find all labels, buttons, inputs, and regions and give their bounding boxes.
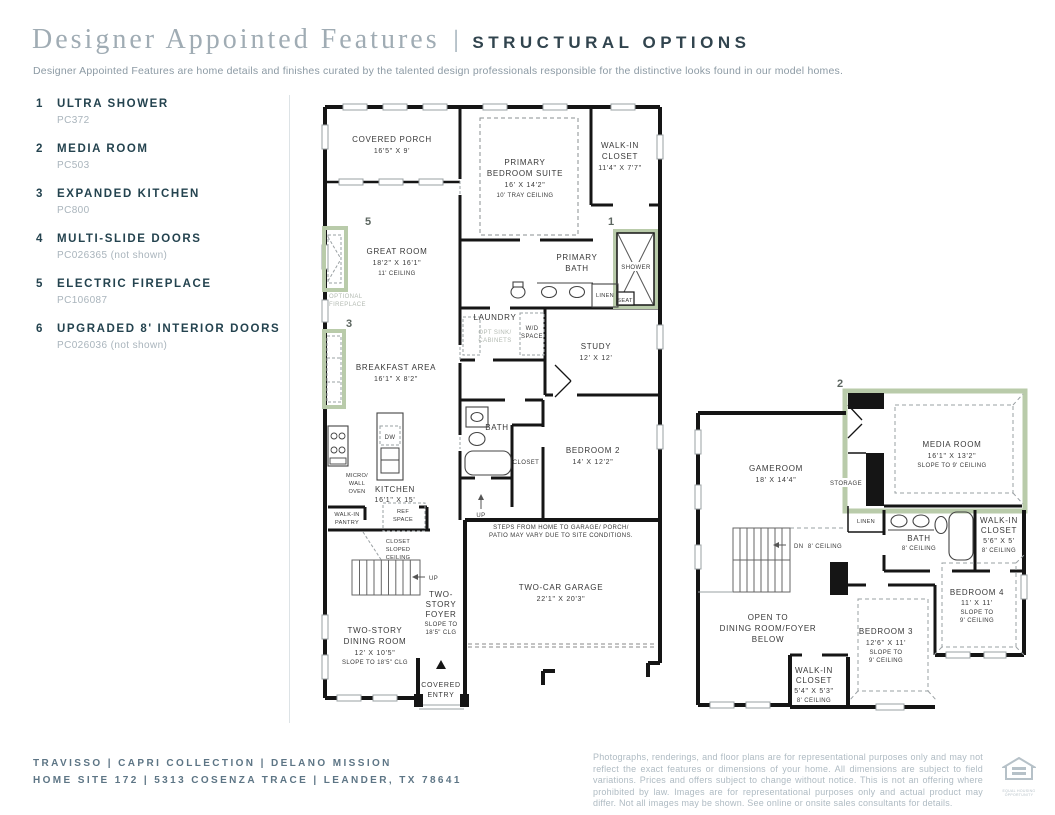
open-to-label: OPEN TO	[748, 613, 789, 622]
wic-upper-dims: 5'6" X 5'	[983, 538, 1015, 545]
breakfast-dims: 16'1" X 8'2"	[374, 376, 418, 383]
steps-note: STEPS FROM HOME TO GARAGE/ PORCH/	[493, 525, 629, 531]
laundry-label: LAUNDRY	[474, 313, 517, 322]
great-room-ceiling: 11' CEILING	[378, 271, 415, 277]
plan1-windows	[322, 104, 663, 701]
equal-housing-house-icon	[1002, 757, 1036, 783]
plan2-interior-walls	[790, 453, 1024, 655]
feature-number: 6	[36, 323, 57, 336]
closet-sloped-label: CEILING	[386, 555, 410, 561]
storage-label: STORAGE	[830, 481, 862, 487]
feature-item-media-room: 2 MEDIA ROOM PC503	[36, 143, 281, 171]
plan2-wall-blocks	[830, 393, 884, 595]
plan1-room-labels: COVERED PORCH 16'5" X 9' PRIMARY BEDROOM…	[329, 135, 653, 699]
feature-code: PC800	[57, 205, 281, 216]
primary-bath-label: PRIMARY	[556, 253, 597, 262]
ceiling8-label: 8' CEILING	[808, 544, 842, 550]
feature-marker-media-room: 2	[837, 378, 843, 390]
linen-label: LINEN	[596, 293, 614, 299]
feature-name: MEDIA ROOM	[57, 143, 281, 156]
opt-sink-label: OPT SINK/	[478, 330, 511, 336]
page-subtitle: Designer Appointed Features are home det…	[33, 65, 843, 77]
garage-dims: 22'1" X 20'3"	[537, 596, 586, 603]
footer-property-info: TRAVISSO | CAPRI COLLECTION | DELANO MIS…	[33, 755, 462, 789]
feature-item-electric-fireplace: 5 ELECTRIC FIREPLACE PC106087	[36, 278, 281, 306]
feature-number: 5	[36, 278, 57, 291]
primary-suite-label: PRIMARY	[504, 158, 545, 167]
designer-features-page: Designer Appointed Features | STRUCTURAL…	[0, 0, 1055, 815]
gameroom-dims: 18' X 14'4"	[756, 477, 797, 484]
wic-lower-ceiling: 8' CEILING	[797, 698, 831, 704]
up-arrow-garage	[478, 494, 484, 509]
study-dims: 12' X 12'	[579, 355, 612, 362]
wic-upper-label: CLOSET	[981, 526, 1017, 535]
walk-in-closet-dims: 11'4" X 7'7"	[598, 165, 642, 172]
feature-name: UPGRADED 8' INTERIOR DOORS	[57, 323, 281, 336]
up-arrow-foyer	[412, 574, 425, 580]
address-line: HOME SITE 172 | 5313 COSENZA TRACE | LEA…	[33, 772, 462, 789]
page-title: Designer Appointed Features | STRUCTURAL…	[32, 24, 750, 56]
covered-porch-label: COVERED PORCH	[352, 135, 432, 144]
dining-label: TWO-STORY	[348, 626, 403, 635]
feature-number: 1	[36, 98, 57, 111]
study-label: STUDY	[581, 342, 612, 351]
feature-name: ELECTRIC FIREPLACE	[57, 278, 281, 291]
foyer-label: STORY	[426, 600, 457, 609]
media-room-label: MEDIA ROOM	[922, 440, 981, 449]
walk-in-closet-label: WALK-IN	[601, 141, 639, 150]
closet-sloped-label: SLOPED	[386, 547, 411, 553]
dn-label: DN	[794, 544, 803, 550]
covered-entry-label: ENTRY	[427, 692, 454, 699]
closet-sloped-label: CLOSET	[386, 539, 410, 545]
features-list: 1 ULTRA SHOWER PC372 2 MEDIA ROOM PC503 …	[36, 98, 281, 368]
first-floor-plan: COVERED PORCH 16'5" X 9' PRIMARY BEDROOM…	[315, 95, 670, 720]
feature-marker-kitchen: 3	[346, 318, 352, 330]
bedroom3-ceiling: SLOPE TO	[870, 650, 903, 656]
ref-space-label: SPACE	[393, 517, 413, 523]
bedroom4-ceiling: SLOPE TO	[961, 610, 994, 616]
plan1-exterior-walls	[325, 107, 660, 705]
feature-name: MULTI-SLIDE DOORS	[57, 233, 281, 246]
feature-name: ULTRA SHOWER	[57, 98, 281, 111]
wic-upper-ceiling: 8' CEILING	[982, 548, 1016, 554]
foyer-label: TWO-	[429, 590, 453, 599]
opt-sink-label: CABINETS	[478, 338, 511, 344]
ref-space-label: REF	[397, 509, 409, 515]
micro-wall-oven-label: OVEN	[348, 489, 365, 495]
bedroom2-dims: 14' X 12'2"	[573, 459, 614, 466]
feature-number: 3	[36, 188, 57, 201]
media-room-doors	[848, 405, 862, 438]
feature-item-multi-slide-doors: 4 MULTI-SLIDE DOORS PC026365 (not shown)	[36, 233, 281, 261]
feature-code: PC026365 (not shown)	[57, 250, 281, 261]
steps-note: PATIO MAY VARY DUE TO SITE CONDITIONS.	[489, 533, 633, 539]
linen-label: LINEN	[857, 519, 875, 525]
bedroom3-label: BEDROOM 3	[859, 627, 913, 636]
micro-wall-oven-label: WALL	[349, 481, 365, 487]
kitchen-label: KITCHEN	[375, 485, 415, 494]
wic-upper-label: WALK-IN	[980, 516, 1018, 525]
optional-fireplace-label: FIREPLACE	[329, 302, 366, 308]
great-room-label: GREAT ROOM	[367, 247, 428, 256]
second-floor-plan: GAMEROOM 18' X 14'4" MEDIA ROOM 16'1" X …	[690, 375, 1035, 720]
feature-name: EXPANDED KITCHEN	[57, 188, 281, 201]
foyer-ceiling: SLOPE TO	[425, 622, 458, 628]
wd-space-label: SPACE	[521, 334, 543, 340]
wd-space-label: W/D	[526, 326, 539, 332]
primary-suite-dims: 16' X 14'2"	[505, 182, 546, 189]
closet-label: CLOSET	[513, 460, 539, 466]
feature-number: 4	[36, 233, 57, 246]
bedroom4-ceiling: 9' CEILING	[960, 618, 994, 624]
bedroom2-label: BEDROOM 2	[566, 446, 620, 455]
dining-dims: 12' X 10'5"	[355, 650, 396, 657]
primary-bath-label: BATH	[565, 264, 589, 273]
covered-entry-label: COVERED	[421, 682, 461, 689]
bedroom4-dims: 11' X 11'	[961, 600, 993, 607]
media-room-ceiling: SLOPE TO 9' CEILING	[917, 463, 986, 469]
feature-code: PC372	[57, 115, 281, 126]
wic-lower-label: WALK-IN	[795, 666, 833, 675]
primary-suite-label: BEDROOM SUITE	[487, 169, 563, 178]
shower-label: SHOWER	[621, 265, 651, 271]
feature-code: PC503	[57, 160, 281, 171]
community-line: TRAVISSO | CAPRI COLLECTION | DELANO MIS…	[33, 755, 462, 772]
garage-label: TWO-CAR GARAGE	[519, 583, 603, 592]
legal-disclaimer: Photographs, renderings, and floor plans…	[593, 752, 983, 810]
feature-item-ultra-shower: 1 ULTRA SHOWER PC372	[36, 98, 281, 126]
open-to-label: BELOW	[752, 635, 784, 644]
primary-suite-ceiling: 10' TRAY CEILING	[497, 193, 554, 199]
breakfast-label: BREAKFAST AREA	[356, 363, 436, 372]
section-title: STRUCTURAL OPTIONS	[472, 33, 750, 53]
media-room-dims: 16'1" X 13'2"	[928, 453, 977, 460]
bath-ceiling: 8' CEILING	[902, 546, 936, 552]
feature-number: 2	[36, 143, 57, 156]
great-room-dims: 18'2" X 16'1"	[373, 260, 422, 267]
shower-seat-label: SEAT	[617, 298, 633, 304]
study-door	[555, 365, 571, 397]
feature-item-expanded-kitchen: 3 EXPANDED KITCHEN PC800	[36, 188, 281, 216]
vertical-divider	[289, 95, 290, 723]
walk-in-closet-label: CLOSET	[602, 152, 638, 161]
gameroom-label: GAMEROOM	[749, 464, 803, 473]
dining-label: DINING ROOM	[344, 637, 407, 646]
bedroom3-dims: 12'6" X 11'	[866, 640, 906, 647]
covered-porch-dims: 16'5" X 9'	[374, 148, 410, 155]
dishwasher-label: DW	[385, 435, 396, 441]
dining-ceiling: SLOPE TO 18'5" CLG	[342, 660, 408, 666]
foyer-label: FOYER	[425, 610, 456, 619]
brand-title: Designer Appointed Features	[32, 24, 440, 56]
feature-item-upgraded-doors: 6 UPGRADED 8' INTERIOR DOORS PC026036 (n…	[36, 323, 281, 351]
optional-fireplace-label: OPTIONAL	[329, 294, 363, 300]
garage-door-lines	[468, 644, 656, 647]
bedroom3-ceiling: 9' CEILING	[869, 658, 903, 664]
pantry-label: WALK-IN	[334, 512, 359, 518]
up-label-foyer: UP	[429, 576, 438, 582]
title-divider: |	[454, 27, 459, 54]
pantry-label: PANTRY	[335, 520, 359, 526]
feature-code: PC106087	[57, 295, 281, 306]
feature-marker-fireplace: 5	[365, 216, 371, 228]
kitchen-dims: 16'1" X 15'	[375, 497, 416, 504]
micro-wall-oven-label: MICRO/	[346, 473, 368, 479]
wic-lower-label: CLOSET	[796, 676, 832, 685]
foyer-ceiling: 18'5" CLG	[426, 630, 457, 636]
secondary-bath-fixtures	[465, 407, 511, 475]
feature-marker-shower: 1	[608, 216, 614, 228]
open-to-label: DINING ROOM/FOYER	[720, 624, 817, 633]
feature-code: PC026036 (not shown)	[57, 340, 281, 351]
upstairs-stairs	[698, 528, 790, 592]
bath-label: BATH	[485, 423, 509, 432]
bedroom4-label: BEDROOM 4	[950, 588, 1004, 597]
equal-housing-text: EQUAL HOUSING OPPORTUNITY	[1001, 789, 1037, 797]
wic-lower-dims: 5'4" X 5'3"	[794, 688, 833, 695]
up-label-garage: UP	[476, 513, 485, 519]
bath-label: BATH	[907, 534, 931, 543]
equal-housing-logo: EQUAL HOUSING OPPORTUNITY	[1001, 757, 1037, 797]
